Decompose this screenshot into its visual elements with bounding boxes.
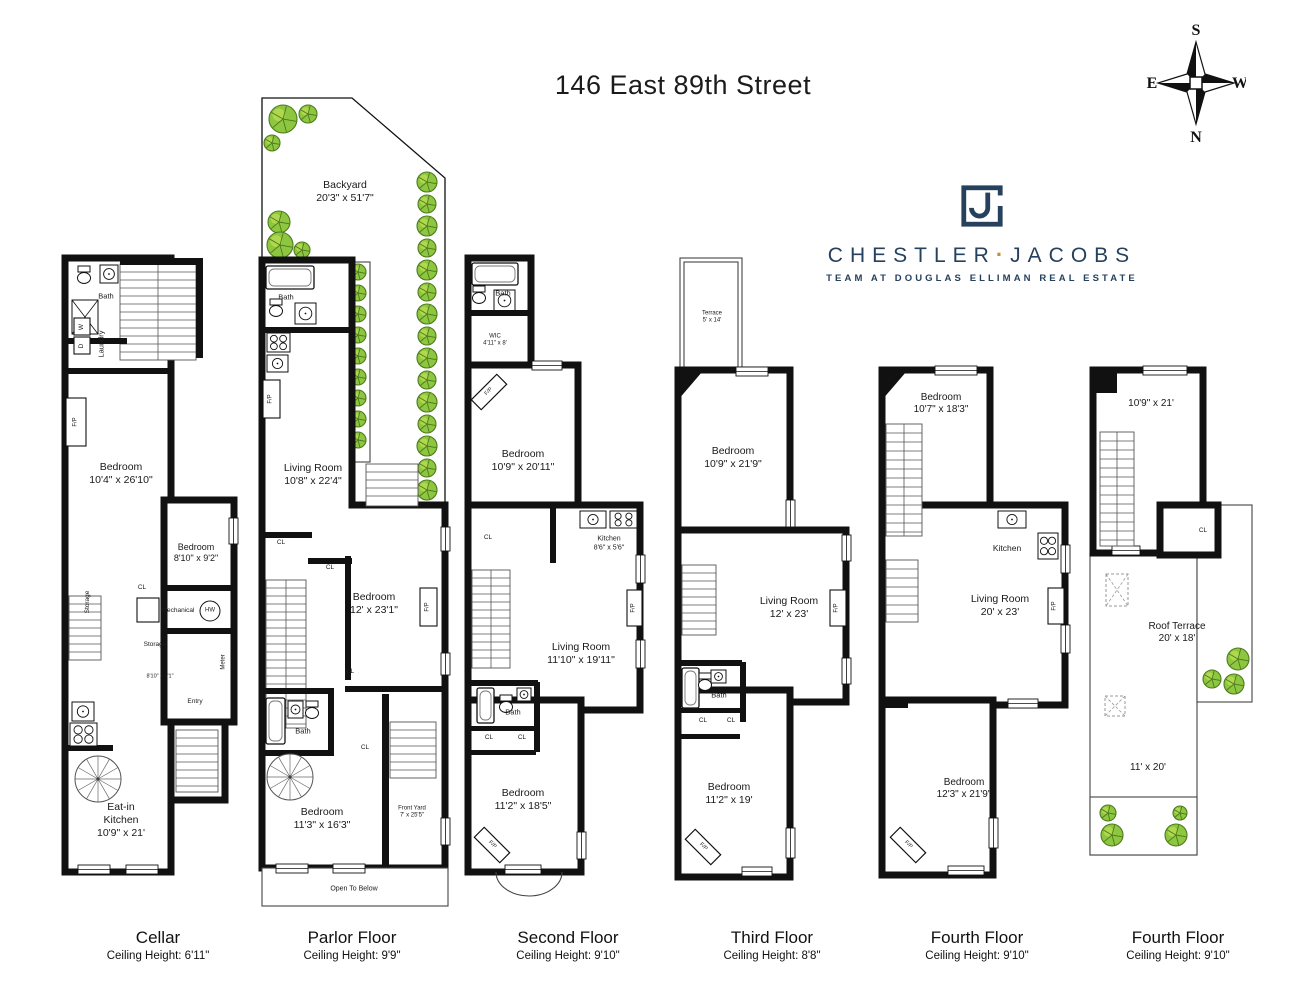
- label-cl: CL: [138, 584, 146, 592]
- wall-segment: [120, 258, 203, 265]
- floorplan-drawing: [0, 0, 1301, 1000]
- wall-segment: [550, 505, 556, 563]
- floor-ceiling-height: Ceiling Height: 9'10": [925, 950, 1028, 962]
- wall-segment: [262, 688, 334, 694]
- label-kitchen: Kitchen8'6" x 5'6": [594, 535, 625, 552]
- skylight: [1105, 696, 1125, 716]
- label-frontyard: Front Yard7' x 25'5": [398, 806, 426, 821]
- label-hw: HW: [205, 607, 215, 614]
- wall-segment: [164, 585, 234, 591]
- fixture-box: [137, 598, 159, 622]
- label-cl2: CL: [326, 564, 334, 572]
- label-kitchen: Kitchen: [993, 543, 1021, 553]
- stairs: [176, 730, 218, 792]
- wall-segment: [678, 734, 740, 739]
- floor-ceiling-height: Ceiling Height: 9'10": [516, 950, 619, 962]
- label-bedroom2: Bedroom11'2" x 19': [705, 781, 752, 807]
- wall-segment: [678, 660, 742, 666]
- label-laundry: Laundry: [96, 330, 105, 357]
- wall-segment: [468, 726, 536, 731]
- floor-caption-fourth: Fourth Floor Ceiling Height: 9'10": [925, 928, 1028, 962]
- label-bedroom2: Bedroom12'3" x 21'9": [937, 777, 992, 801]
- label-fp2: F/P: [630, 603, 637, 612]
- floor-name: Cellar: [107, 928, 210, 948]
- wall-segment: [740, 662, 746, 722]
- floor-caption-cellar: Cellar Ceiling Height: 6'11": [107, 928, 210, 962]
- label-cl1: CL: [277, 539, 285, 547]
- floor-caption-parlor: Parlor Floor Ceiling Height: 9'9": [303, 928, 400, 962]
- label-cl2: CL: [485, 734, 493, 742]
- stove: [70, 723, 97, 746]
- label-living: Living Room10'8" x 22'4": [284, 462, 342, 488]
- label-bath2: Bath: [295, 726, 310, 735]
- label-d: D: [78, 344, 86, 349]
- label-fp1: F/P: [267, 394, 274, 403]
- label-bath1: Bath: [495, 288, 510, 297]
- wall-segment: [882, 700, 908, 708]
- label-fp1: F/P: [833, 603, 840, 612]
- wall-segment: [328, 688, 334, 752]
- label-backyard: Backyard20'3" x 51'7": [316, 179, 374, 205]
- toilet: [306, 701, 318, 707]
- floor-caption-roof: Fourth Floor Ceiling Height: 9'10": [1126, 928, 1229, 962]
- wall-segment: [534, 682, 540, 752]
- label-terrace: Terrace5' x 14': [702, 311, 722, 326]
- label-wic: WIC4'11" x 8': [483, 334, 507, 349]
- bay-window: [496, 872, 562, 896]
- label-bedroom2: Bedroom8'10" x 9'2": [174, 542, 218, 564]
- floor-name: Fourth Floor: [925, 928, 1028, 948]
- stairs: [682, 565, 716, 635]
- roof-cl-annex: [1160, 505, 1218, 555]
- label-bedroom1: Bedroom10'4" x 26'10": [89, 461, 152, 487]
- wall-segment: [678, 708, 740, 713]
- wall-segment: [468, 750, 536, 755]
- wall-segment: [164, 628, 234, 634]
- label-fp2: F/P: [424, 602, 431, 611]
- wall-segment: [345, 686, 445, 692]
- wall-segment: [345, 556, 351, 680]
- label-bedroom1: Bedroom10'7" x 18'3": [914, 392, 969, 416]
- label-kitchen: Eat-inKitchen10'9" x 21': [97, 801, 145, 839]
- label-storage2: Storage: [144, 641, 167, 649]
- stove: [1038, 533, 1058, 559]
- floor-ceiling-height: Ceiling Height: 9'10": [1126, 950, 1229, 962]
- floor-name: Fourth Floor: [1126, 928, 1229, 948]
- floor-caption-second: Second Floor Ceiling Height: 9'10": [516, 928, 619, 962]
- label-hall: 8'10" x 3'1": [146, 674, 173, 681]
- floor-ceiling-height: Ceiling Height: 9'9": [303, 950, 400, 962]
- label-cl2: CL: [727, 717, 735, 725]
- toilet: [473, 286, 485, 292]
- toilet: [699, 673, 711, 679]
- wall-segment: [262, 327, 352, 333]
- floor-ceiling-height: Ceiling Height: 6'11": [107, 950, 210, 962]
- floorplan-canvas: 146 East 89th Street S N E W CHESTLER·JA…: [0, 0, 1301, 1000]
- floor-name: Second Floor: [516, 928, 619, 948]
- floor-caption-third: Third Floor Ceiling Height: 8'8": [723, 928, 820, 962]
- stairs: [366, 464, 418, 506]
- wall-segment: [468, 680, 538, 686]
- wall-segment: [468, 310, 531, 316]
- wall-segment: [1093, 373, 1117, 393]
- stove: [610, 511, 637, 528]
- label-bedroom1: Bedroom12' x 23'1": [350, 591, 398, 617]
- floor-name: Third Floor: [723, 928, 820, 948]
- label-fp: F/P: [72, 417, 79, 426]
- wall-segment: [262, 532, 312, 538]
- label-terrace: Roof Terrace20' x 18': [1148, 621, 1205, 645]
- floor-name: Parlor Floor: [303, 928, 400, 948]
- label-living: Living Room12' x 23': [760, 595, 818, 621]
- label-bedroom1: Bedroom10'9" x 20'11": [492, 448, 555, 474]
- label-bath2: Bath: [505, 707, 520, 716]
- label-w: W: [78, 324, 86, 330]
- wall-segment: [196, 258, 203, 358]
- label-bath: Bath: [98, 291, 113, 300]
- toilet: [78, 266, 90, 272]
- label-open: Open To Below: [330, 886, 377, 895]
- label-room: 10'9" x 21': [1128, 398, 1174, 410]
- label-storage1: Storage: [84, 591, 92, 614]
- label-bedroom2: Bedroom11'2" x 18'5": [495, 787, 552, 813]
- label-fp1: F/P: [1051, 601, 1058, 610]
- wall-segment: [65, 368, 171, 374]
- label-bath1: Bath: [278, 292, 293, 301]
- wall-segment: [382, 694, 389, 868]
- label-bath: Bath: [711, 690, 726, 699]
- toilet: [500, 695, 512, 701]
- label-cl: CL: [1199, 527, 1207, 535]
- label-living: Living Room20' x 23': [971, 593, 1029, 619]
- label-cl1: CL: [484, 534, 492, 542]
- label-bedroom1: Bedroom10'9" x 21'9": [704, 445, 762, 471]
- label-lower: 11' x 20': [1130, 762, 1166, 774]
- label-cl4: CL: [361, 744, 369, 752]
- label-living: Living Room11'10" x 19'11": [547, 641, 615, 667]
- stove: [267, 333, 290, 352]
- label-bedroom2: Bedroom11'3" x 16'3": [294, 806, 351, 832]
- label-meter: Meter: [220, 654, 227, 669]
- label-cl3: CL: [518, 734, 526, 742]
- label-cl1: CL: [699, 717, 707, 725]
- label-mechanical: Mechanical: [162, 607, 195, 615]
- label-cl3: CL: [346, 668, 354, 676]
- label-entry: Entry: [187, 698, 202, 706]
- floor-ceiling-height: Ceiling Height: 8'8": [723, 950, 820, 962]
